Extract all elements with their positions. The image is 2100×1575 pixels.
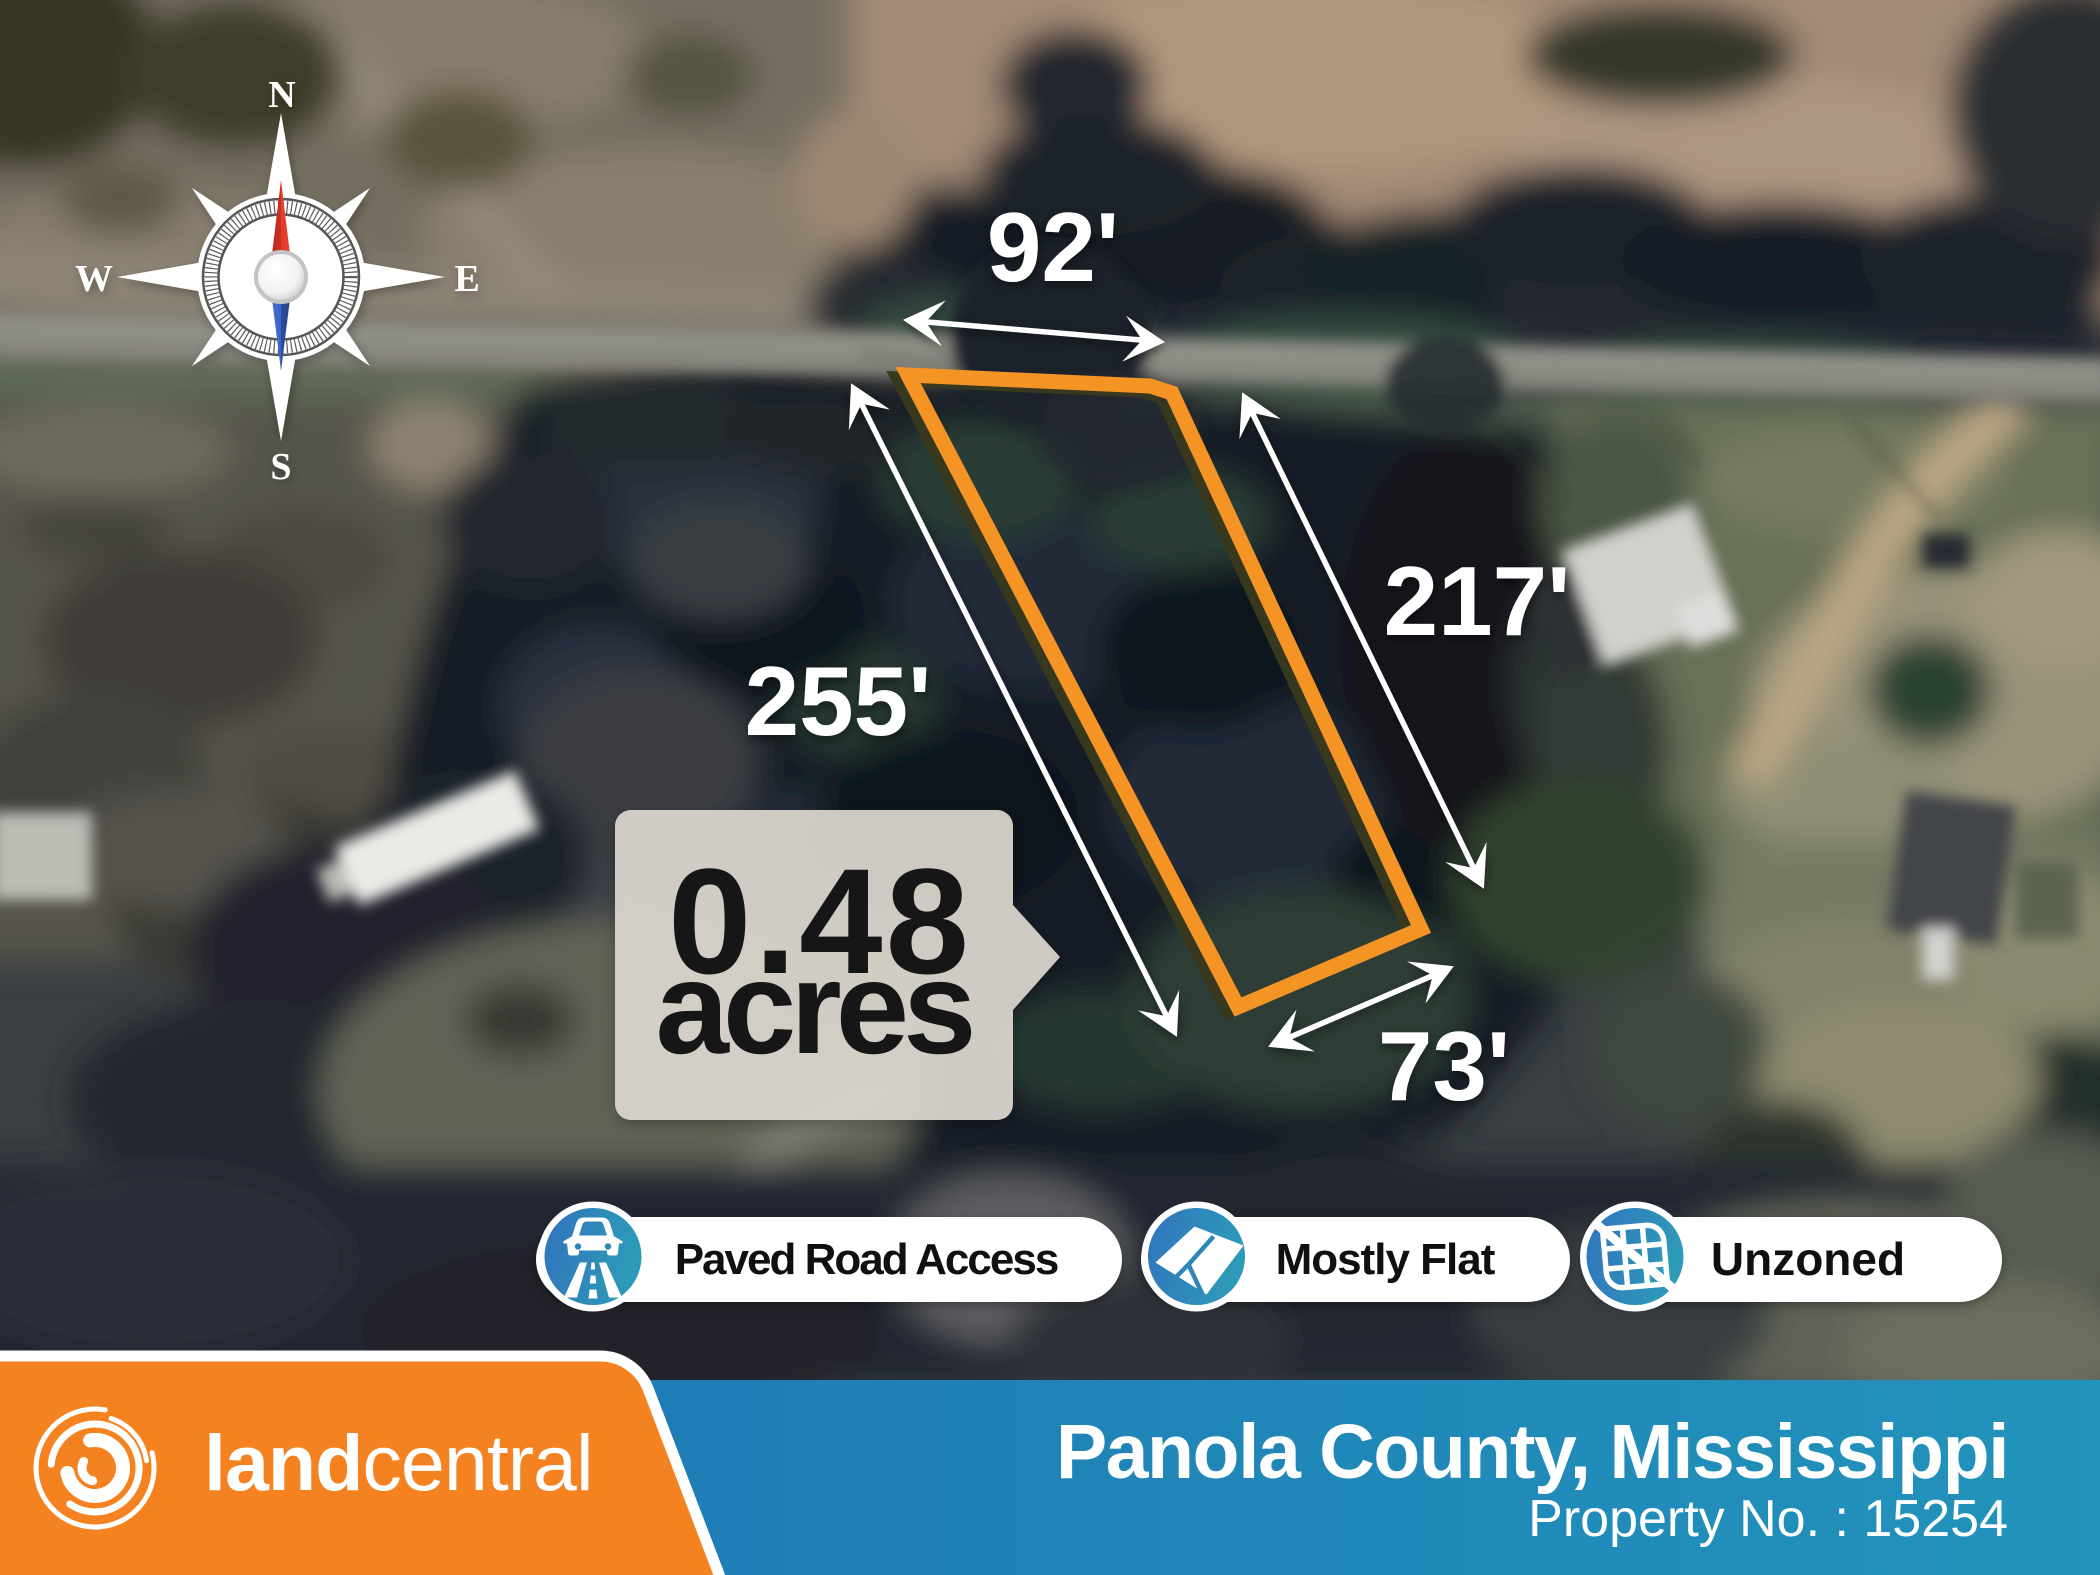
- svg-text:92': 92': [987, 192, 1119, 302]
- svg-text:Paved Road Access: Paved Road Access: [675, 1235, 1058, 1284]
- svg-text:217': 217': [1384, 546, 1571, 656]
- svg-text:landcentral: landcentral: [204, 1418, 593, 1507]
- svg-text:73': 73': [1378, 1011, 1510, 1121]
- svg-text:acres: acres: [655, 934, 971, 1081]
- svg-text:255': 255': [745, 646, 932, 756]
- svg-text:Unzoned: Unzoned: [1711, 1233, 1905, 1285]
- svg-text:Mostly Flat: Mostly Flat: [1276, 1235, 1496, 1284]
